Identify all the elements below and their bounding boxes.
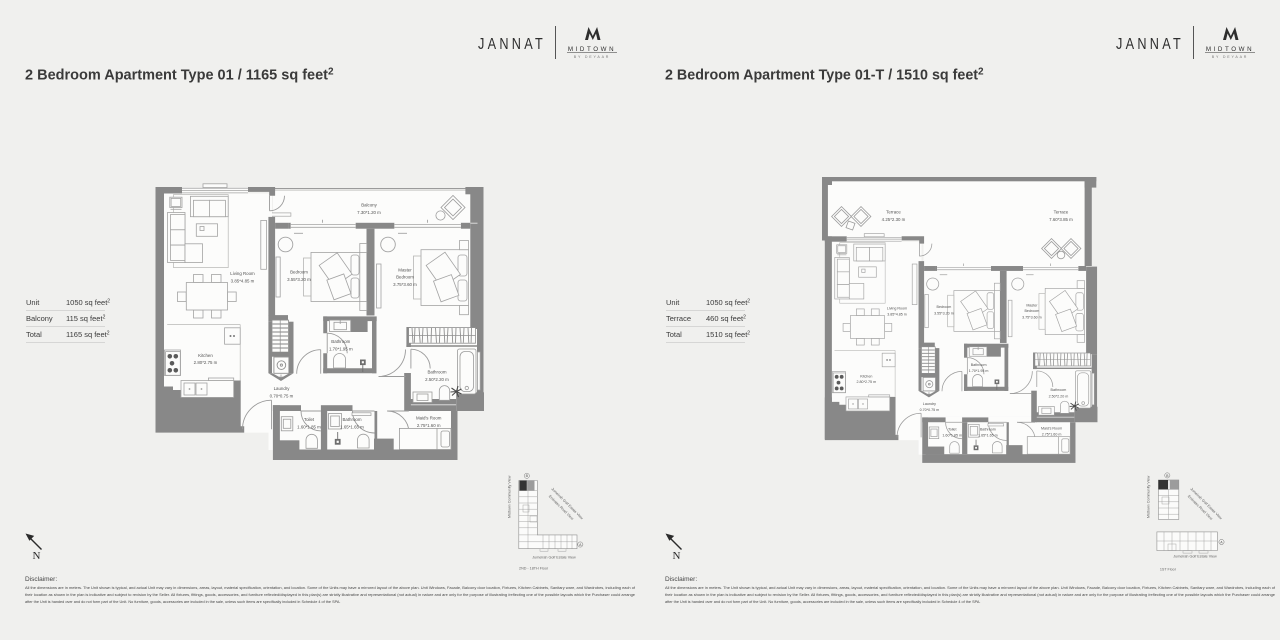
svg-text:Midtown Community View: Midtown Community View	[1147, 475, 1151, 518]
svg-text:2 Bedroom Apartment Type 01 /: 2 Bedroom Apartment Type 01 / 1165 sq fe…	[25, 67, 334, 84]
svg-text:Unit: Unit	[26, 298, 40, 307]
svg-text:BY DEYAAR: BY DEYAAR	[1212, 55, 1248, 59]
svg-text:All the dimensions are in mete: All the dimensions are in meters. The Un…	[25, 586, 636, 590]
svg-text:2 Bedroom Apartment Type 01-T: 2 Bedroom Apartment Type 01-T / 1510 sq …	[665, 67, 984, 84]
svg-text:7.60*3.85 m: 7.60*3.85 m	[1049, 217, 1073, 222]
svg-text:Unit: Unit	[666, 298, 680, 307]
svg-text:after the Unit is handed over: after the Unit is handed over and do not…	[665, 600, 980, 604]
svg-text:Total: Total	[666, 330, 682, 339]
svg-text:N: N	[673, 550, 681, 562]
svg-text:N: N	[33, 550, 41, 562]
svg-text:4.25*2.30 m: 4.25*2.30 m	[882, 217, 906, 222]
svg-text:Disclaimer:: Disclaimer:	[25, 576, 57, 583]
svg-text:JANNAT: JANNAT	[478, 36, 546, 53]
svg-text:Terrace: Terrace	[1054, 210, 1069, 215]
svg-text:after the Unit is handed over: after the Unit is handed over and do not…	[25, 600, 340, 604]
svg-text:1050 sq feet2: 1050 sq feet2	[706, 298, 750, 307]
svg-text:MIDTOWN: MIDTOWN	[1206, 46, 1254, 53]
svg-text:Balcony: Balcony	[26, 314, 53, 323]
svg-text:Midtown Community View: Midtown Community View	[508, 475, 512, 518]
svg-text:Terrace: Terrace	[886, 210, 901, 215]
svg-text:Balcony: Balcony	[361, 203, 377, 208]
svg-text:1510 sq feet2: 1510 sq feet2	[706, 330, 750, 339]
svg-text:2ND - 18TH Floor: 2ND - 18TH Floor	[519, 567, 549, 571]
svg-text:JANNAT: JANNAT	[1116, 36, 1184, 53]
svg-text:7.30*1.20 m: 7.30*1.20 m	[357, 210, 381, 215]
svg-text:Disclaimer:: Disclaimer:	[665, 576, 697, 583]
svg-text:All the dimensions are in mete: All the dimensions are in meters. The Un…	[665, 586, 1276, 590]
svg-text:Jumeirah Golf Estate View: Jumeirah Golf Estate View	[1173, 555, 1217, 559]
svg-text:Total: Total	[26, 330, 42, 339]
svg-text:1165 sq feet2: 1165 sq feet2	[66, 330, 110, 339]
svg-text:1ST Floor: 1ST Floor	[1160, 568, 1177, 572]
svg-text:460 sq feet2: 460 sq feet2	[706, 314, 746, 323]
svg-text:Jumeirah Golf Estate View: Jumeirah Golf Estate View	[532, 556, 576, 560]
svg-text:1050 sq feet2: 1050 sq feet2	[66, 298, 110, 307]
svg-text:BY DEYAAR: BY DEYAAR	[574, 55, 610, 59]
svg-text:MIDTOWN: MIDTOWN	[568, 46, 616, 53]
svg-text:their location as shown in the: their location as shown in the plan is i…	[665, 593, 1275, 597]
svg-text:Terrace: Terrace	[666, 314, 691, 323]
svg-text:their location as shown in the: their location as shown in the plan is i…	[25, 593, 635, 597]
svg-text:115 sq feet2: 115 sq feet2	[66, 314, 106, 323]
